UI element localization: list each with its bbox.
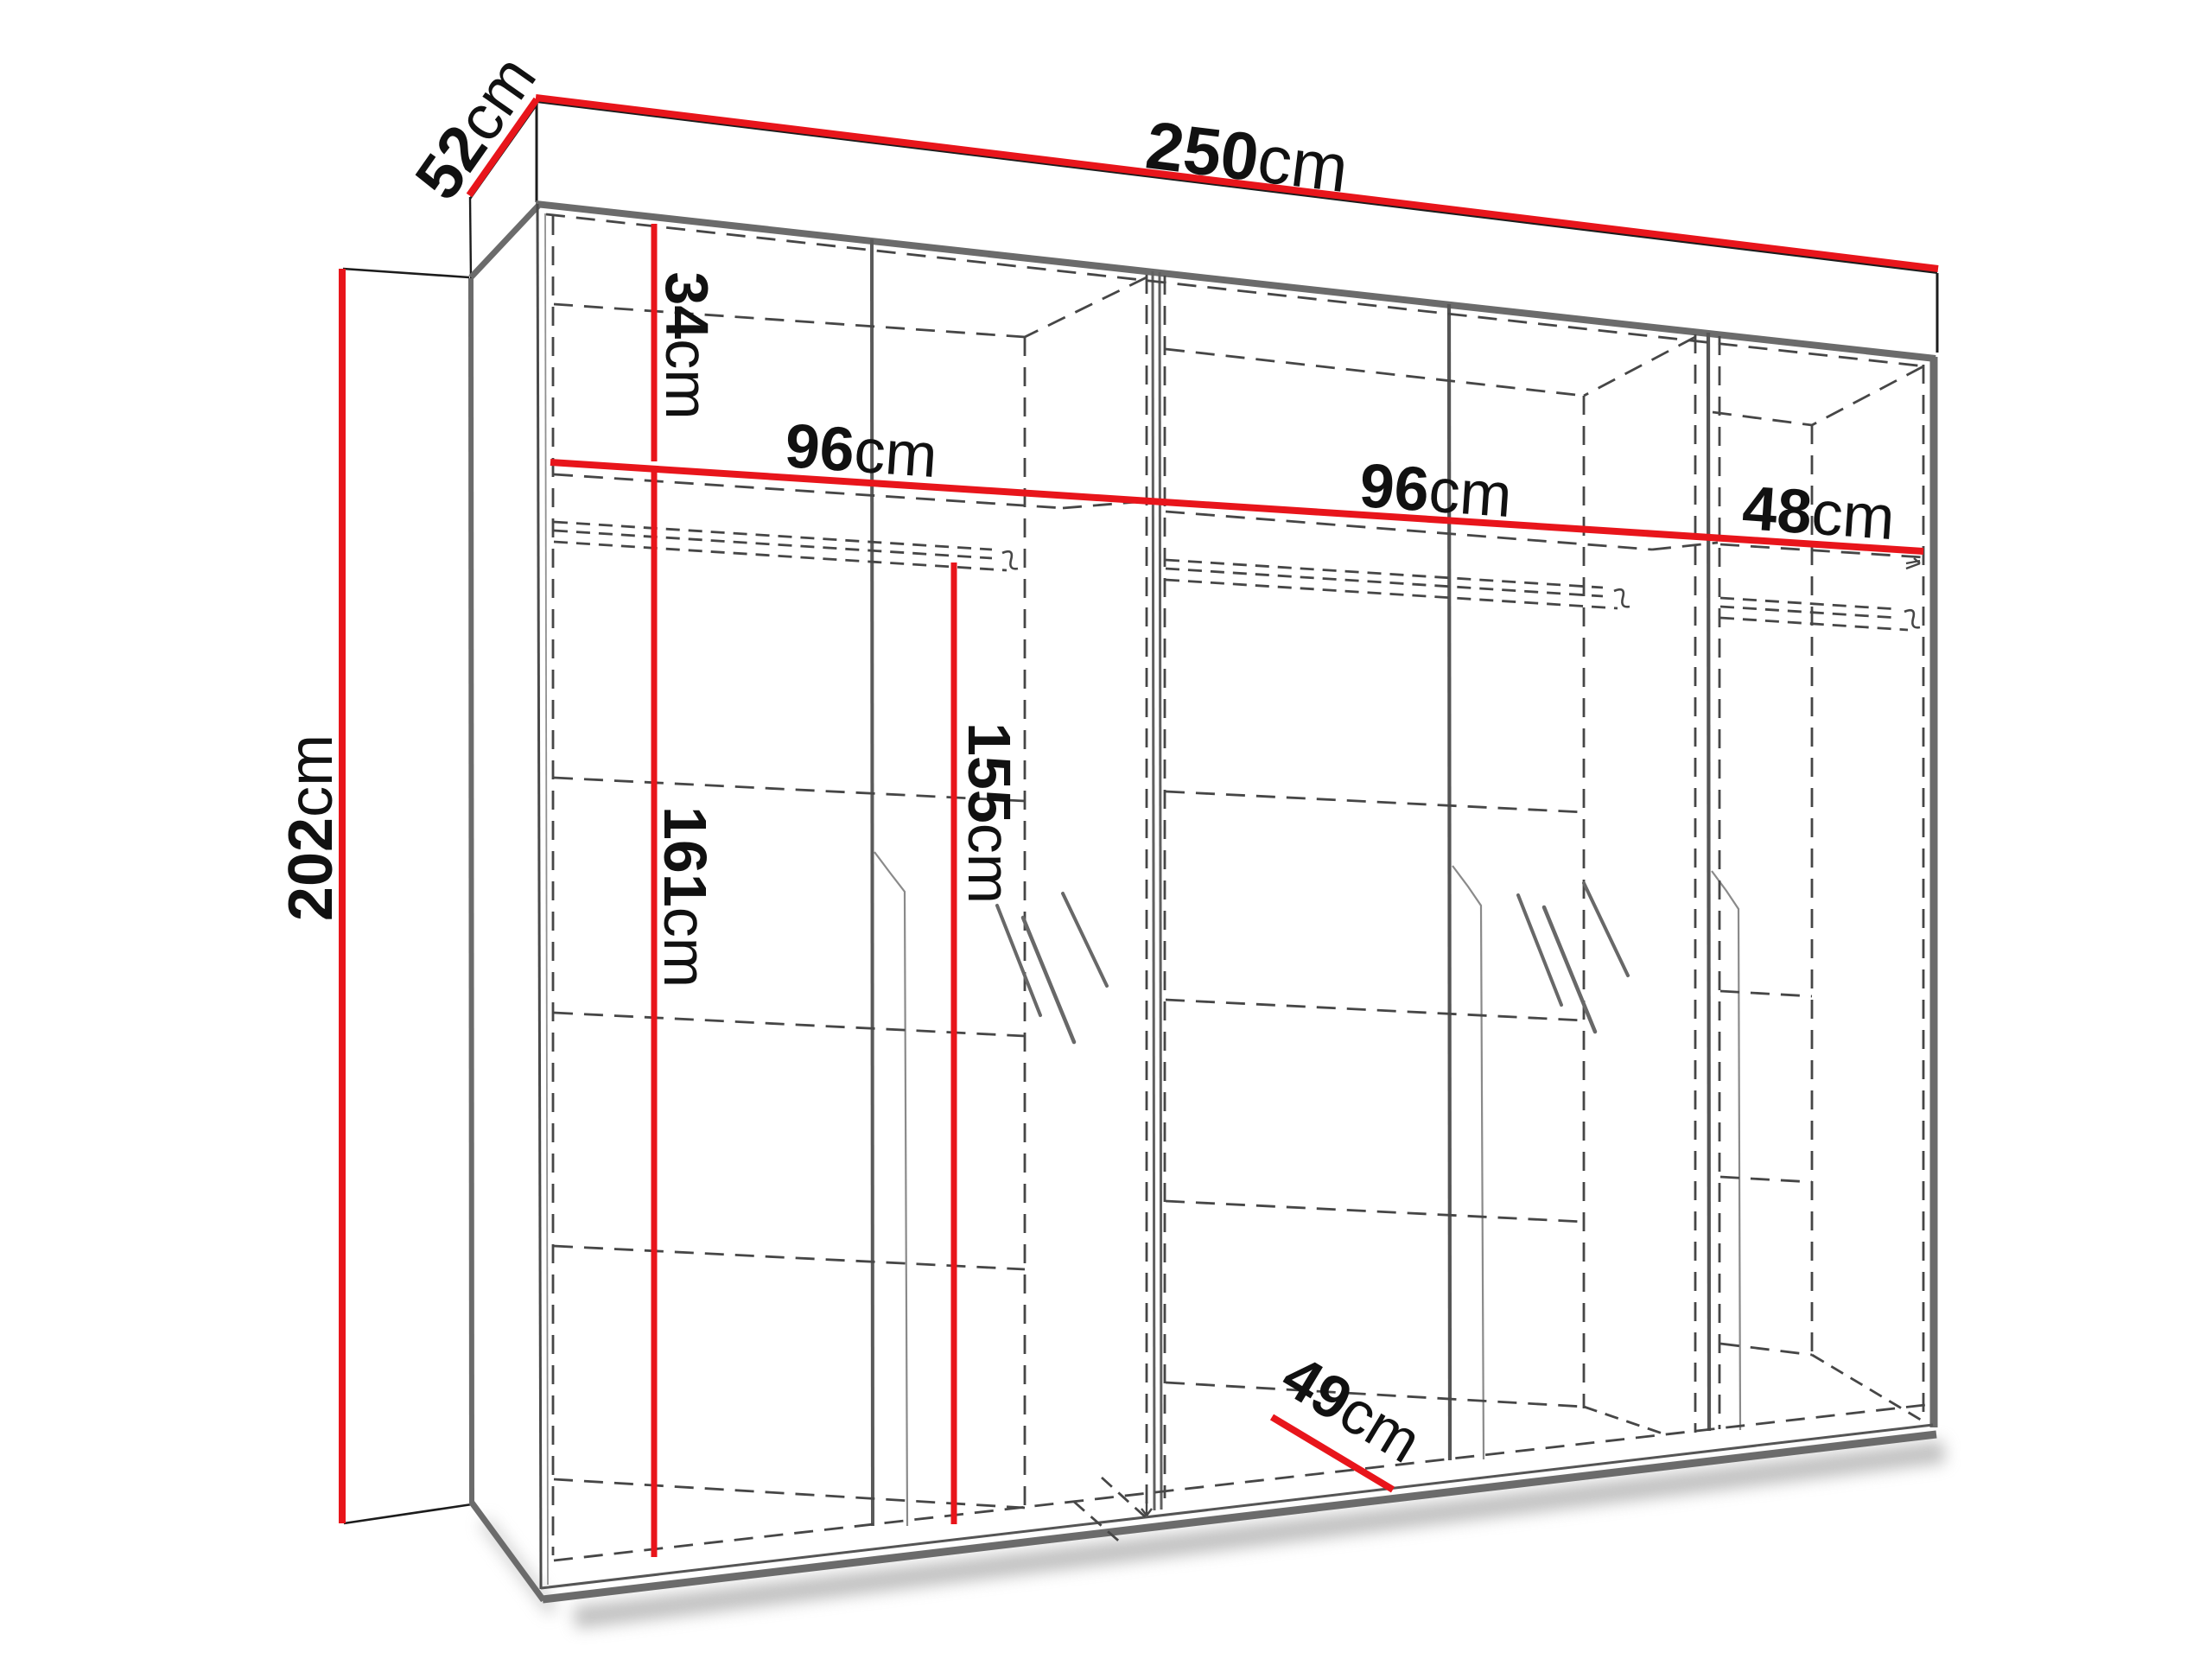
svg-text:161cm: 161cm <box>652 806 719 988</box>
svg-text:34cm: 34cm <box>653 271 721 419</box>
svg-text:96cm: 96cm <box>1357 451 1514 531</box>
svg-text:202cm: 202cm <box>276 734 346 921</box>
svg-text:48cm: 48cm <box>1740 474 1897 553</box>
svg-text:96cm: 96cm <box>783 411 939 491</box>
svg-text:155cm: 155cm <box>956 722 1023 904</box>
